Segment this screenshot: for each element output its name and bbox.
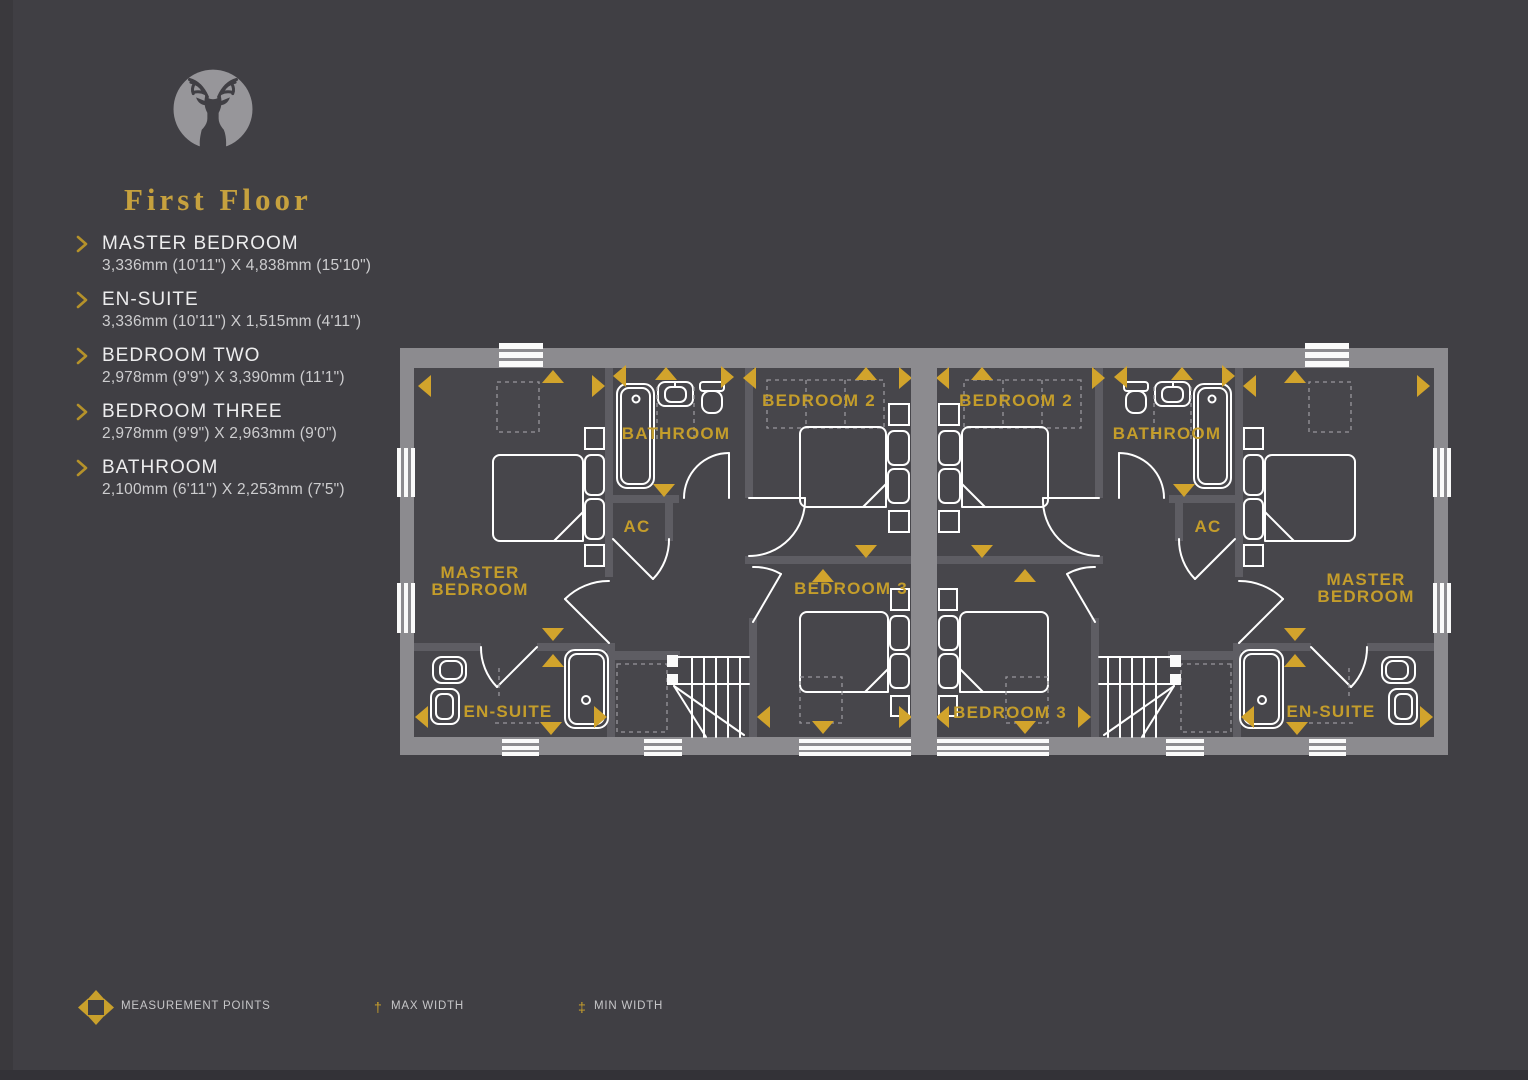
- floor-plan: MASTER BEDROOM BATHROOM AC BEDROOM 2 BED…: [0, 0, 1528, 1080]
- measurement-points-icon: [78, 988, 116, 1028]
- party-wall: [911, 348, 937, 755]
- label-bedroom2-left: BEDROOM 2: [762, 391, 876, 410]
- legend-max-width: MAX WIDTH: [391, 1000, 464, 1012]
- label-bedroom3-left: BEDROOM 3: [794, 579, 908, 598]
- label-master-bedroom-left: BEDROOM: [431, 580, 528, 599]
- label-bathroom-right: BATHROOM: [1113, 424, 1221, 443]
- label-bedroom3-right: BEDROOM 3: [953, 703, 1067, 722]
- label-bathroom-left: BATHROOM: [622, 424, 730, 443]
- bottom-edge-shade: [0, 1070, 1528, 1080]
- label-bedroom2-right: BEDROOM 2: [959, 391, 1073, 410]
- page: First Floor MASTER BEDROOM 3,336mm (10'1…: [0, 0, 1528, 1080]
- label-ensuite-right: EN-SUITE: [1287, 702, 1376, 721]
- label-ensuite-left: EN-SUITE: [464, 702, 553, 721]
- dagger-icon: †: [374, 999, 382, 1015]
- label-master-bedroom-right: BEDROOM: [1317, 587, 1414, 606]
- double-dagger-icon: ‡: [578, 999, 586, 1015]
- legend-min-width: MIN WIDTH: [594, 1000, 663, 1012]
- label-ac-right: AC: [1195, 517, 1222, 536]
- legend-measurement-points: MEASUREMENT POINTS: [121, 1000, 271, 1012]
- label-ac-left: AC: [624, 517, 651, 536]
